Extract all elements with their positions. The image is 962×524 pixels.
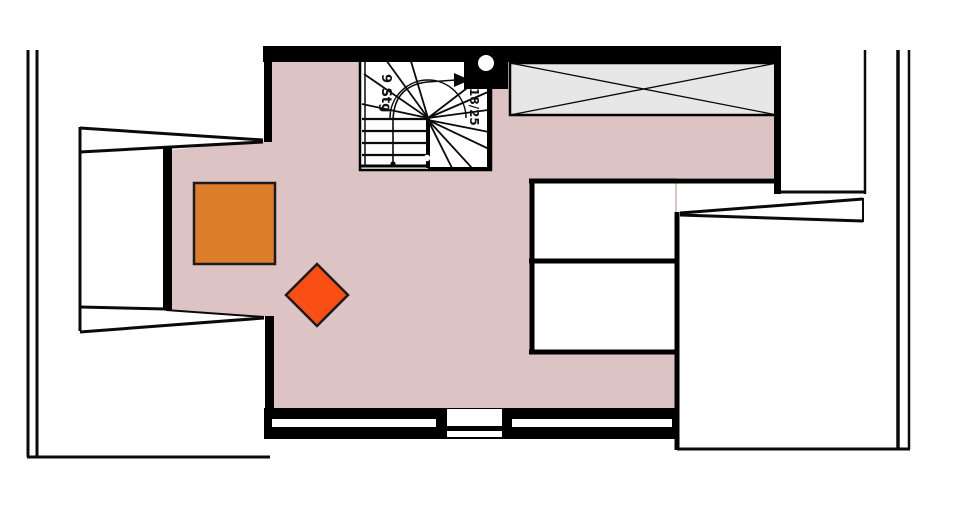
- wall-right: [774, 46, 781, 194]
- furniture-square: [194, 183, 275, 264]
- wall-left-lower: [265, 316, 274, 410]
- wall-opening: [447, 409, 502, 426]
- wall-left-upper: [264, 46, 272, 142]
- window-glazing-right: [512, 419, 672, 427]
- right-rooms-interior: [532, 181, 675, 351]
- floor-plan-drawing: 9 Stg 18/25: [0, 0, 962, 524]
- window-glazing-left: [272, 419, 436, 427]
- wall-left-notch: [163, 147, 172, 310]
- round-post-icon: [477, 54, 495, 72]
- wall-top: [263, 46, 779, 62]
- dormer-right: [680, 198, 863, 222]
- stair-dimension-label: 18/25: [467, 88, 481, 126]
- stair-newel-dot: [424, 155, 430, 161]
- wall-bottom: [264, 408, 679, 439]
- stair-count-label: 9 Stg: [378, 74, 393, 112]
- roof-window-box: [510, 63, 777, 115]
- floor-plan-canvas: 9 Stg 18/25: [0, 0, 962, 524]
- wall-opening-lower-line: [447, 431, 502, 437]
